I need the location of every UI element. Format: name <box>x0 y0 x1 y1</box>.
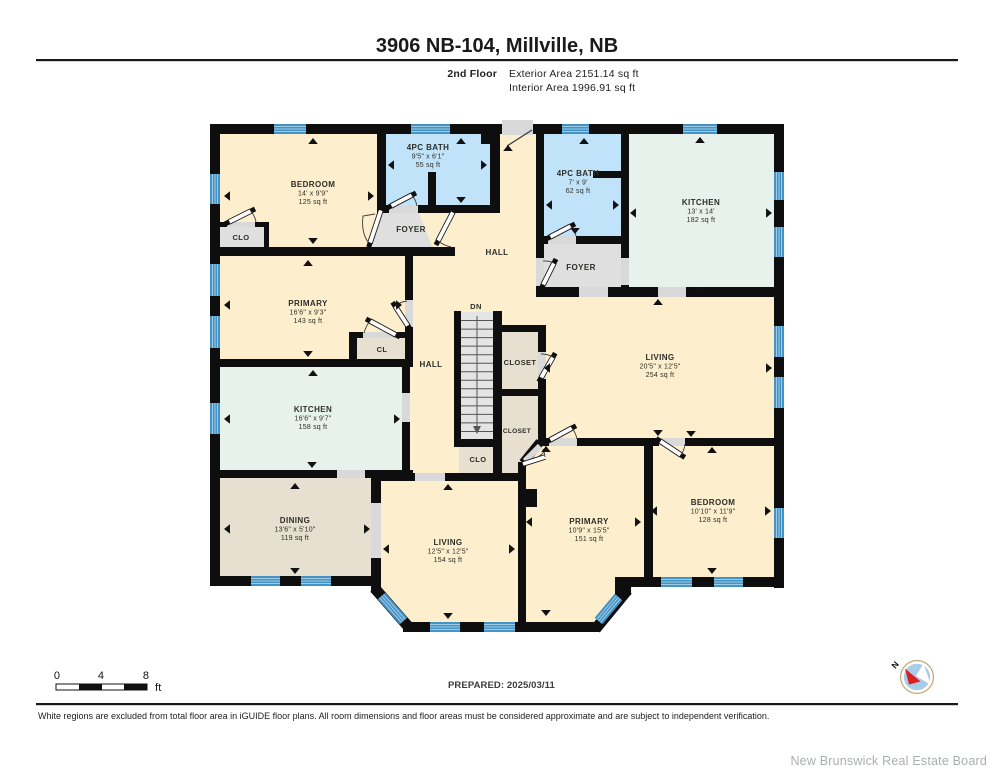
svg-text:4PC BATH: 4PC BATH <box>407 143 450 152</box>
svg-text:154 sq ft: 154 sq ft <box>434 557 463 564</box>
svg-text:Interior Area 1996.91 sq ft: Interior Area 1996.91 sq ft <box>509 82 635 94</box>
svg-text:CLO: CLO <box>232 233 249 242</box>
svg-text:16'6" x 9'7": 16'6" x 9'7" <box>295 416 332 423</box>
svg-text:4PC BATH: 4PC BATH <box>557 169 600 178</box>
svg-text:3906 NB-104, Millville, NB: 3906 NB-104, Millville, NB <box>376 35 618 57</box>
svg-text:ft: ft <box>155 682 162 694</box>
svg-text:14' x 9'9": 14' x 9'9" <box>298 191 328 198</box>
svg-text:20'5" x 12'5": 20'5" x 12'5" <box>640 364 681 371</box>
svg-text:2nd Floor: 2nd Floor <box>447 68 497 80</box>
svg-text:DN: DN <box>470 302 482 311</box>
svg-text:13'6" x 5'10": 13'6" x 5'10" <box>275 527 316 534</box>
svg-text:143 sq ft: 143 sq ft <box>294 318 323 325</box>
svg-text:DINING: DINING <box>280 516 310 525</box>
svg-text:125 sq ft: 125 sq ft <box>299 199 328 206</box>
svg-text:8: 8 <box>143 670 149 682</box>
svg-text:55 sq ft: 55 sq ft <box>416 162 441 169</box>
svg-text:HALL: HALL <box>420 360 443 369</box>
svg-text:158 sq ft: 158 sq ft <box>299 424 328 431</box>
svg-text:KITCHEN: KITCHEN <box>682 198 720 207</box>
svg-text:LIVING: LIVING <box>645 353 674 362</box>
svg-text:LIVING: LIVING <box>433 538 462 547</box>
svg-text:128 sq ft: 128 sq ft <box>699 517 728 524</box>
svg-text:0: 0 <box>54 670 60 682</box>
svg-text:PREPARED: 2025/03/11: PREPARED: 2025/03/11 <box>448 680 556 691</box>
svg-text:CLOSET: CLOSET <box>503 428 531 435</box>
svg-text:KITCHEN: KITCHEN <box>294 405 332 414</box>
svg-text:N: N <box>889 659 901 670</box>
svg-text:13' x 14': 13' x 14' <box>687 209 714 216</box>
svg-text:FOYER: FOYER <box>566 263 596 272</box>
svg-text:White regions are excluded fro: White regions are excluded from total fl… <box>38 711 769 721</box>
svg-text:CLOSET: CLOSET <box>504 358 537 367</box>
svg-text:182 sq ft: 182 sq ft <box>687 217 716 224</box>
svg-text:254 sq ft: 254 sq ft <box>646 372 675 379</box>
svg-text:Exterior Area 2151.14 sq ft: Exterior Area 2151.14 sq ft <box>509 68 639 80</box>
svg-text:CLO: CLO <box>469 455 486 464</box>
svg-text:BEDROOM: BEDROOM <box>291 180 336 189</box>
svg-text:FOYER: FOYER <box>396 225 426 234</box>
svg-text:62 sq ft: 62 sq ft <box>566 188 591 195</box>
svg-text:PRIMARY: PRIMARY <box>569 517 609 526</box>
svg-text:10'10" x 11'9": 10'10" x 11'9" <box>691 509 736 516</box>
svg-text:119 sq ft: 119 sq ft <box>281 535 309 542</box>
svg-text:7' x 9': 7' x 9' <box>568 180 587 187</box>
svg-text:16'6" x 9'3": 16'6" x 9'3" <box>290 310 327 317</box>
svg-text:9'5" x 6'1": 9'5" x 6'1" <box>412 154 445 161</box>
svg-text:PRIMARY: PRIMARY <box>288 299 328 308</box>
svg-text:BEDROOM: BEDROOM <box>691 498 736 507</box>
svg-text:10'9" x 15'5": 10'9" x 15'5" <box>569 528 610 535</box>
svg-text:HALL: HALL <box>486 248 509 257</box>
svg-text:4: 4 <box>98 670 104 682</box>
svg-text:12'5" x 12'5": 12'5" x 12'5" <box>428 549 469 556</box>
svg-text:151 sq ft: 151 sq ft <box>575 536 604 543</box>
svg-text:CL: CL <box>377 345 388 354</box>
svg-text:New Brunswick Real Estate Boar: New Brunswick Real Estate Board <box>790 754 987 768</box>
